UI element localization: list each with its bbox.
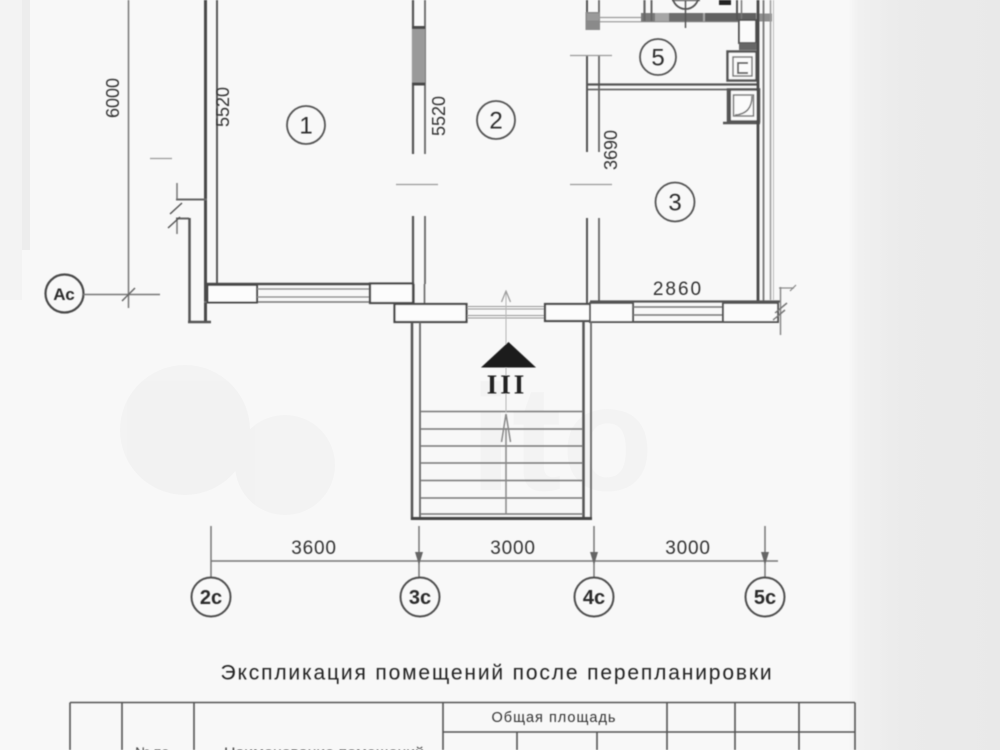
svg-text:№ по: № по [135,744,169,750]
svg-text:5: 5 [651,45,664,72]
svg-text:1: 1 [299,113,312,140]
svg-text:3: 3 [668,190,681,217]
svg-text:Наименование помещений: Наименование помещений [224,744,424,750]
svg-text:2: 2 [489,108,502,135]
svg-text:3000: 3000 [665,538,710,559]
svg-text:5520: 5520 [429,96,449,136]
svg-text:Экспликация помещений после пе: Экспликация помещений после перепланиров… [221,662,774,685]
svg-text:3000: 3000 [490,538,535,559]
svg-text:2с: 2с [200,587,222,609]
svg-text:2860: 2860 [653,279,703,300]
svg-text:5с: 5с [754,587,776,609]
svg-text:Общая площадь: Общая площадь [491,710,616,726]
svg-text:III: III [487,370,528,400]
svg-text:3690: 3690 [601,130,621,170]
svg-text:3с: 3с [409,587,431,609]
svg-text:5520: 5520 [213,87,233,127]
svg-text:Ас: Ас [53,285,75,304]
svg-text:3600: 3600 [291,538,336,559]
svg-text:4с: 4с [583,587,605,609]
svg-text:6000: 6000 [103,78,123,118]
